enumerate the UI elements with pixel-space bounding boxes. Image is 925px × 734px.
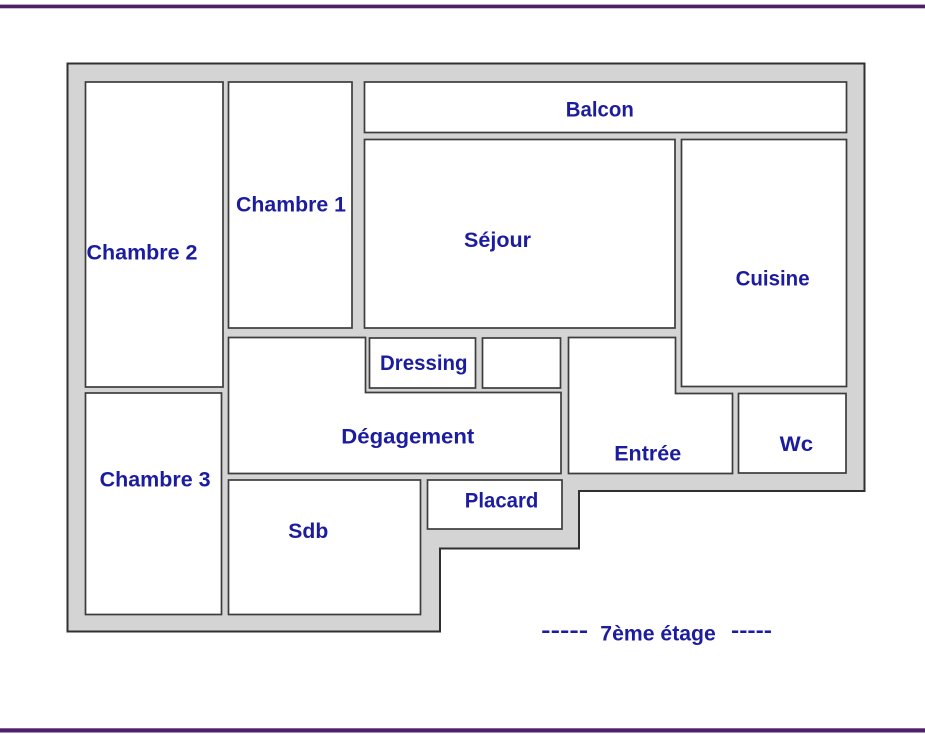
svg-text:Dressing: Dressing (380, 351, 468, 375)
svg-text:Sdb: Sdb (288, 519, 328, 543)
svg-text:Wc: Wc (780, 432, 814, 456)
svg-text:-----: ----- (541, 619, 588, 643)
svg-text:Entrée: Entrée (614, 441, 681, 465)
svg-text:Chambre 1: Chambre 1 (236, 193, 346, 217)
svg-text:Balcon: Balcon (566, 98, 634, 122)
svg-text:7ème étage: 7ème étage (600, 621, 716, 645)
svg-text:Chambre 3: Chambre 3 (100, 468, 211, 492)
svg-text:Cuisine: Cuisine (736, 266, 810, 290)
svg-text:Placard: Placard (465, 489, 539, 513)
svg-text:Séjour: Séjour (464, 228, 532, 252)
svg-text:Dégagement: Dégagement (341, 425, 474, 449)
svg-text:-----: ----- (731, 619, 772, 643)
svg-text:Chambre 2: Chambre 2 (87, 241, 198, 265)
